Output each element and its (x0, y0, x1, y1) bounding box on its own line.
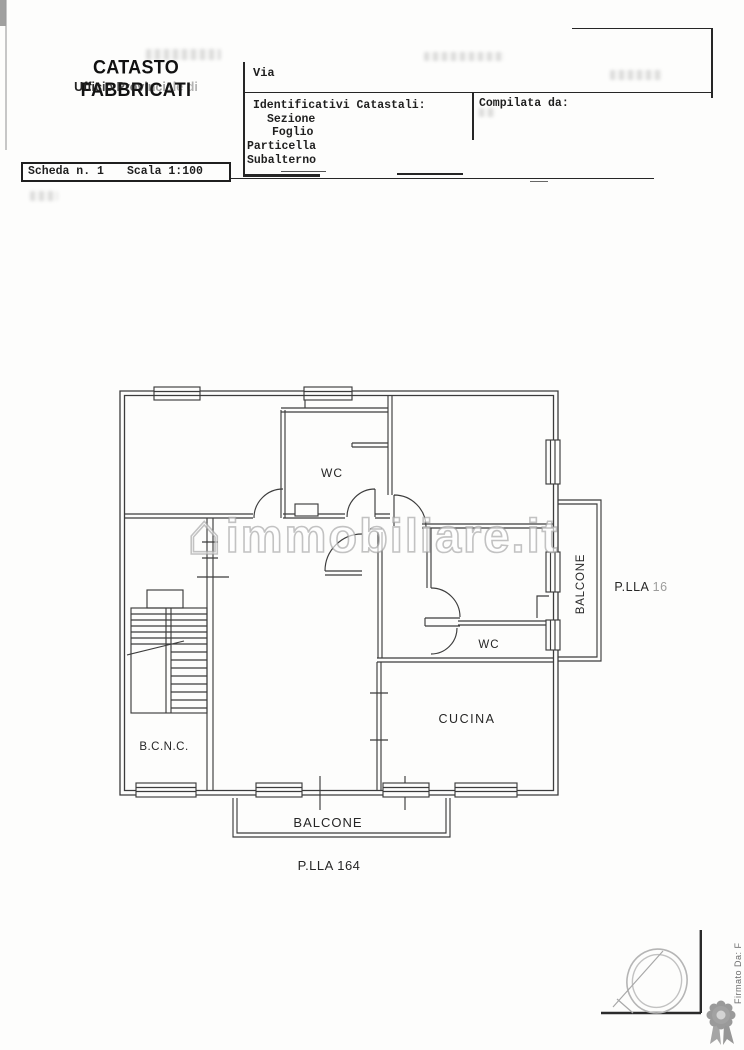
floor-plan-drawing: WC WC CUCINA B.C.N.C. BALCONE BALCONE P.… (0, 0, 744, 1050)
fade-overlay (651, 576, 673, 594)
label-balcone-right: BALCONE (575, 554, 587, 615)
digital-signature-text: Firmato Da: F (733, 914, 743, 1004)
rosette-ribbon-icon (707, 1001, 736, 1046)
room-label-cucina: CUCINA (439, 712, 496, 726)
label-balcone-bottom: BALCONE (293, 815, 362, 830)
staircase (127, 590, 207, 713)
notary-stamp-icon (613, 943, 693, 1018)
wall-pilaster (295, 504, 318, 516)
room-label-wc-top: WC (321, 466, 343, 480)
cadastral-sheet-page: CATASTO FABBRICATI Ufficio Provinciale d… (0, 0, 744, 1050)
room-label-wc-mid: WC (478, 639, 499, 651)
label-plla-bottom: P.LLA 164 (298, 858, 361, 873)
interior-walls (125, 396, 554, 791)
windows (136, 387, 560, 797)
outer-walls (120, 391, 558, 795)
room-label-bcnc: B.C.N.C. (139, 741, 188, 753)
